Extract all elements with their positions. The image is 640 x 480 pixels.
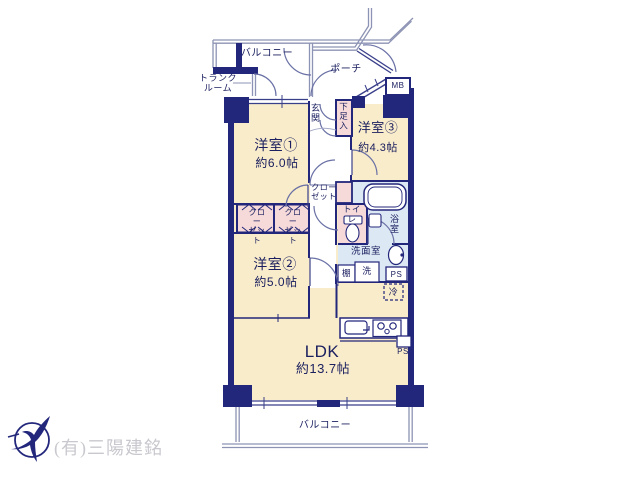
room1-size: 約6.0帖 [247, 157, 307, 171]
floor-plan-drawing [0, 0, 640, 480]
porch-label: ポーチ [328, 64, 364, 76]
room1-name: 洋室① [246, 137, 306, 153]
bathroom-label: 浴室 [389, 214, 398, 234]
toilet-bowl-icon [346, 224, 359, 242]
room2-size: 約5.0帖 [246, 276, 306, 290]
company-logo [8, 416, 50, 462]
pipe-space-kitchen-label: PS [395, 347, 411, 356]
bath-counter-icon [369, 214, 381, 227]
meter-box-label: MB [386, 81, 410, 90]
entrance-label: 玄関 [310, 103, 319, 123]
company-name: (有)三陽建銘 [54, 438, 194, 459]
room3-size: 約4.3帖 [351, 142, 405, 155]
balcony-bottom-label: バルコニー [298, 420, 352, 432]
pipe-space-washroom-label: PS [386, 270, 407, 279]
hallway-lower [310, 203, 336, 288]
room2-name: 洋室② [245, 256, 305, 272]
balcony-top-label: バルコニー [238, 48, 296, 60]
ldk-size: 約13.7帖 [291, 362, 355, 377]
toilet-label: トイレ [339, 205, 365, 225]
bathtub-icon [364, 184, 406, 210]
closet-room2-right-label: クロー ゼット [281, 208, 305, 245]
laundry-label: 洗 [355, 266, 379, 276]
floor-plan: バルコニー トランク ルーム ポーチ MB 玄関 下足入 洋室① 約6.0帖 洋… [0, 0, 640, 480]
kitchen-sink-icon [345, 321, 367, 334]
ldk-name: LDK [300, 342, 344, 362]
washroom-label: 洗面室 [348, 247, 384, 258]
closet-room2-left-label: クロー ゼット [245, 208, 269, 245]
pipe-space-kitchen-box [397, 336, 411, 347]
closet-hall-label: クロー ゼット [311, 183, 337, 201]
fridge-label: 冷 [384, 287, 403, 297]
shelf-label: 棚 [338, 269, 355, 279]
trunk-room-label: トランク ルーム [196, 73, 240, 94]
shoe-cabinet-label: 下足入 [339, 102, 348, 131]
room3-name: 洋室③ [350, 121, 406, 136]
closet-hall-box [336, 182, 352, 203]
